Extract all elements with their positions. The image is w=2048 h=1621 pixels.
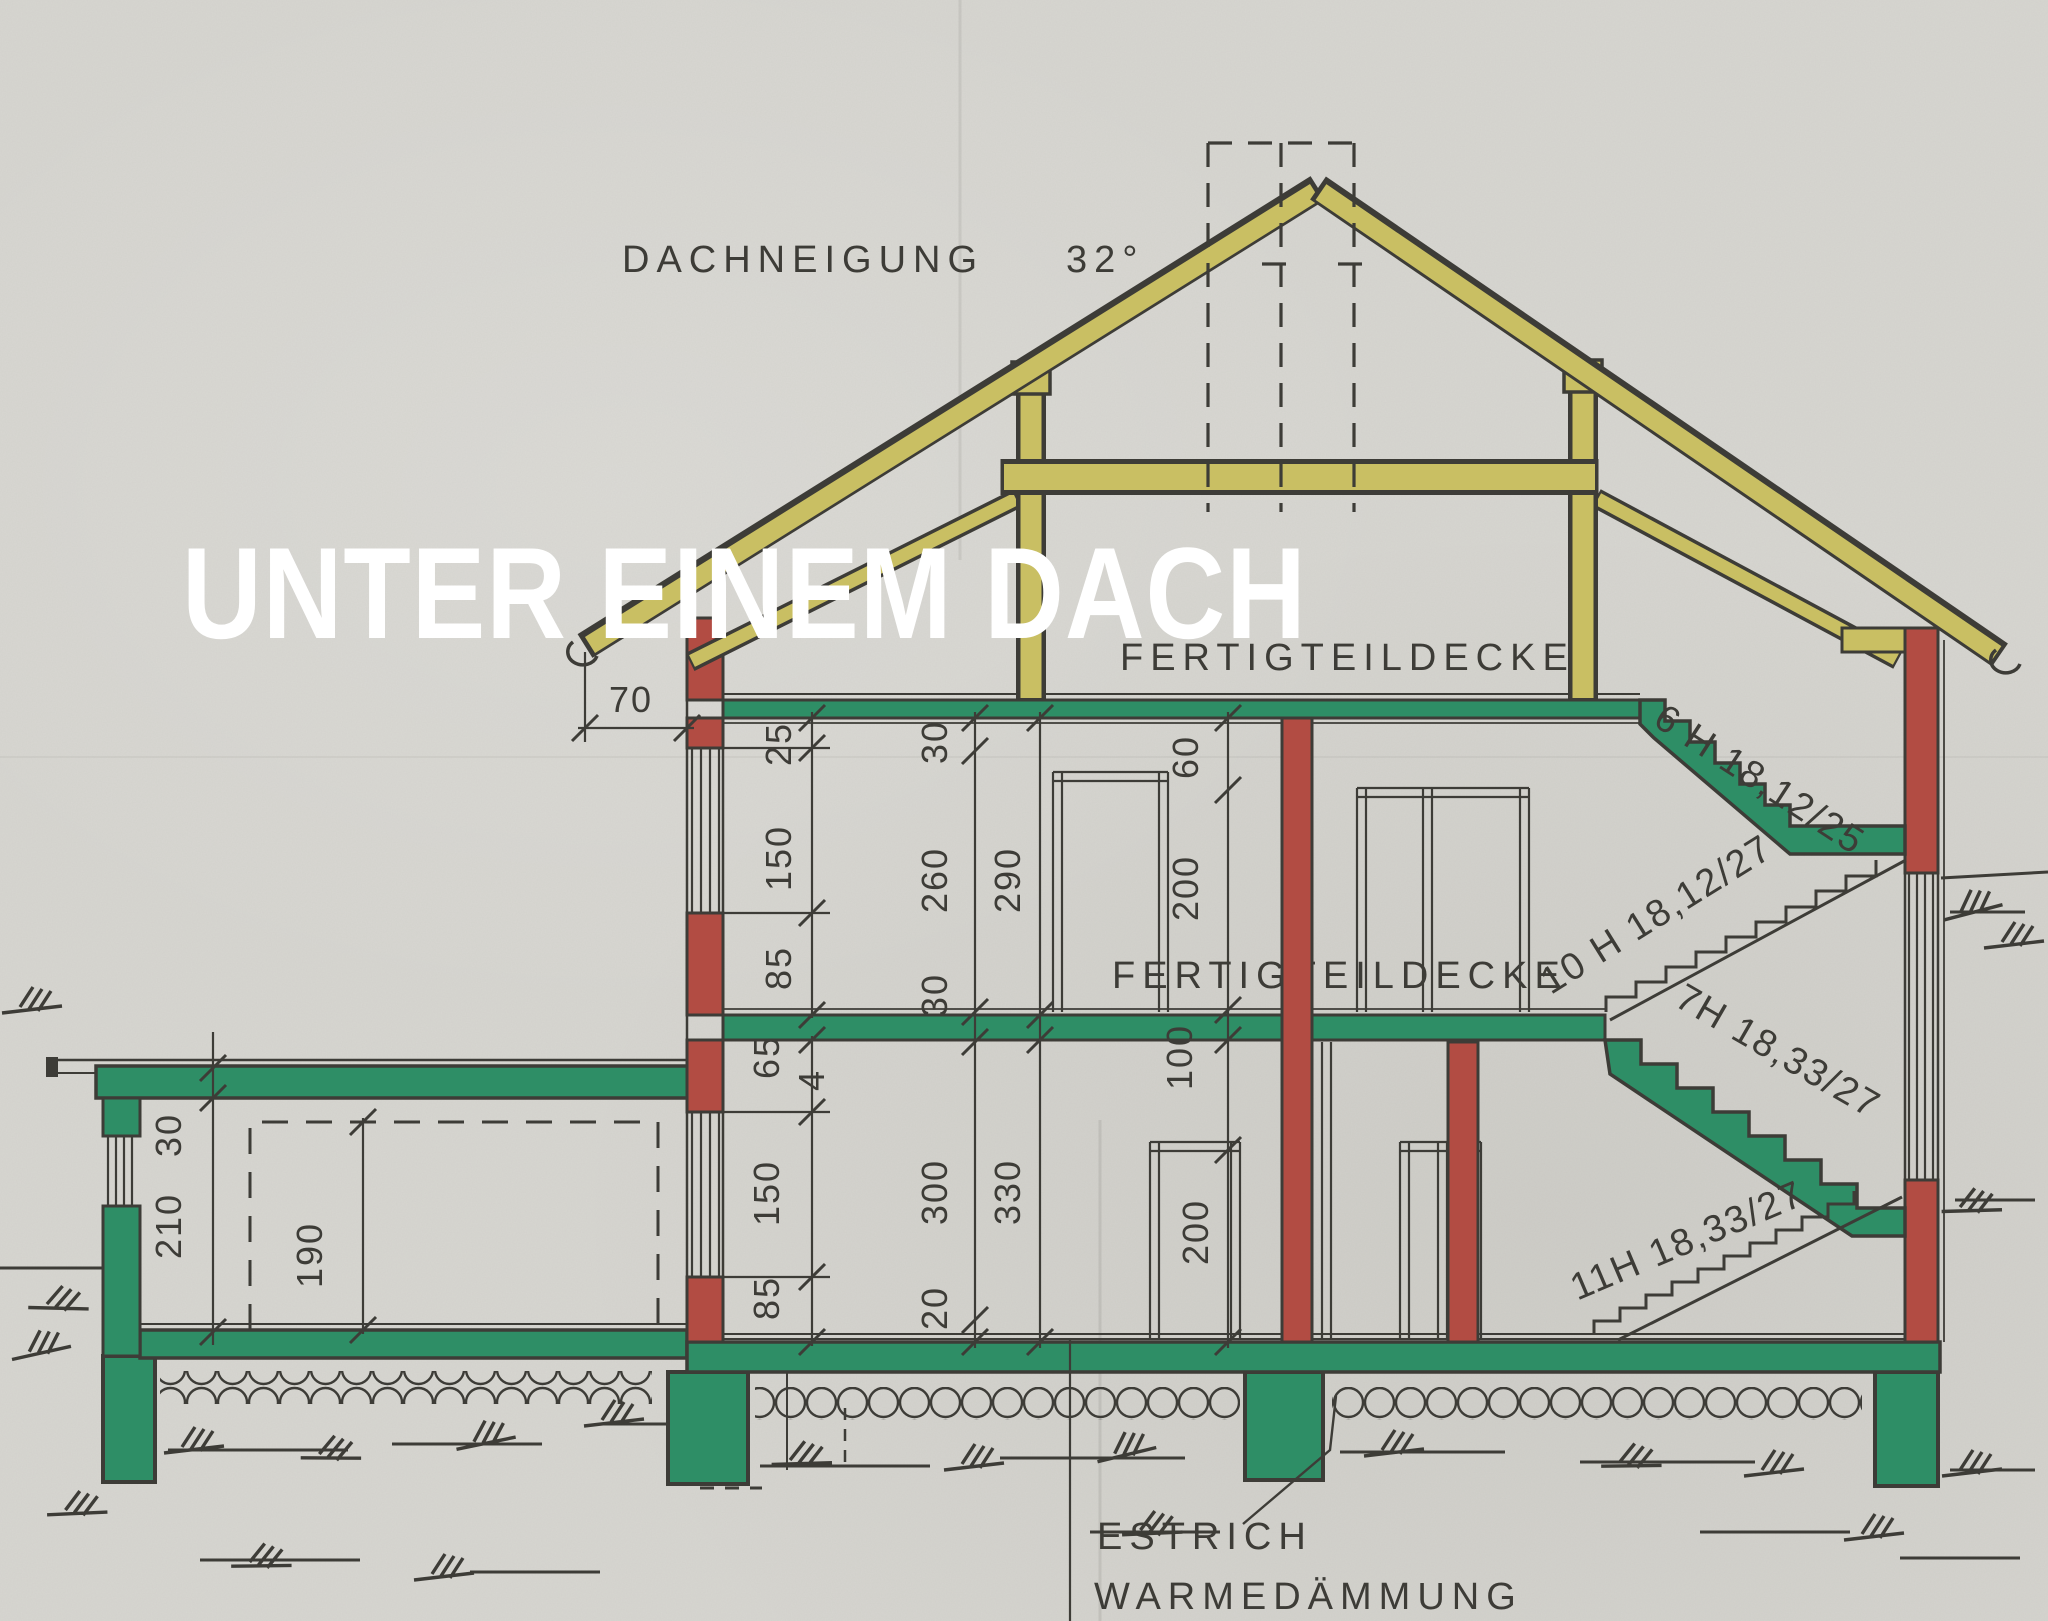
- dim-clear-upper: 290: [987, 847, 1028, 913]
- dim-lower-window: 150: [746, 1160, 787, 1226]
- dim-upper-window: 150: [758, 825, 799, 891]
- attic-ceiling-slab: [723, 700, 1640, 718]
- dim-upper-parapet: 85: [758, 946, 799, 990]
- blueprint-sheet: DACHNEIGUNG 32° FERTIGTEILDECKE FERTIGTE…: [0, 0, 2048, 1621]
- screed-label: ESTRICH: [1097, 1516, 1313, 1558]
- center-column: [1282, 718, 1312, 1342]
- ground-floor-slab: [687, 1342, 1940, 1372]
- ground-floor-column: [1448, 1042, 1478, 1342]
- wall-plate-right: [1842, 628, 1905, 652]
- dim-annex-roof: 30: [148, 1113, 189, 1157]
- overlay-headline: UNTER EINEM DACH: [182, 528, 1307, 658]
- cross-section-drawing: DACHNEIGUNG 32° FERTIGTEILDECKE FERTIGTE…: [0, 0, 2048, 1621]
- dim-chain-s5: 20: [914, 1286, 955, 1330]
- dim-annex-opening: 190: [289, 1222, 330, 1288]
- dim-eave-overhang: 70: [609, 679, 653, 720]
- insulation-label: WARMEDÄMMUNG: [1094, 1576, 1523, 1618]
- dim-chain-s2: 260: [914, 847, 955, 913]
- roof-pitch-label: DACHNEIGUNG: [622, 239, 984, 281]
- dim-chain-s3: 30: [914, 973, 955, 1017]
- annex-floor-slab: [140, 1330, 687, 1358]
- dim-upper-lintel: 25: [758, 722, 799, 766]
- dim-chain-s1: 30: [914, 720, 955, 764]
- annex-wall-bottom: [103, 1206, 140, 1356]
- dim-lower-joint: 4: [791, 1069, 832, 1091]
- roof-pitch-value: 32°: [1066, 239, 1144, 281]
- dim-opening-o3: 100: [1159, 1024, 1200, 1090]
- dim-opening-o4: 200: [1175, 1199, 1216, 1265]
- dim-clear-lower: 330: [987, 1159, 1028, 1225]
- dim-lower-parapet: 85: [746, 1276, 787, 1320]
- dim-annex-room: 210: [148, 1193, 189, 1259]
- ground-ceiling-label: FERTIGTEILDECKE: [1112, 955, 1567, 997]
- annex-roof-slab: [96, 1066, 690, 1098]
- dim-opening-o2: 200: [1165, 855, 1206, 921]
- annex-wall-top: [103, 1098, 140, 1136]
- collar-beam: [1002, 459, 1597, 495]
- dim-opening-o1: 60: [1165, 735, 1206, 779]
- dim-lower-lintel: 65: [746, 1035, 787, 1079]
- dim-chain-s4: 300: [914, 1159, 955, 1225]
